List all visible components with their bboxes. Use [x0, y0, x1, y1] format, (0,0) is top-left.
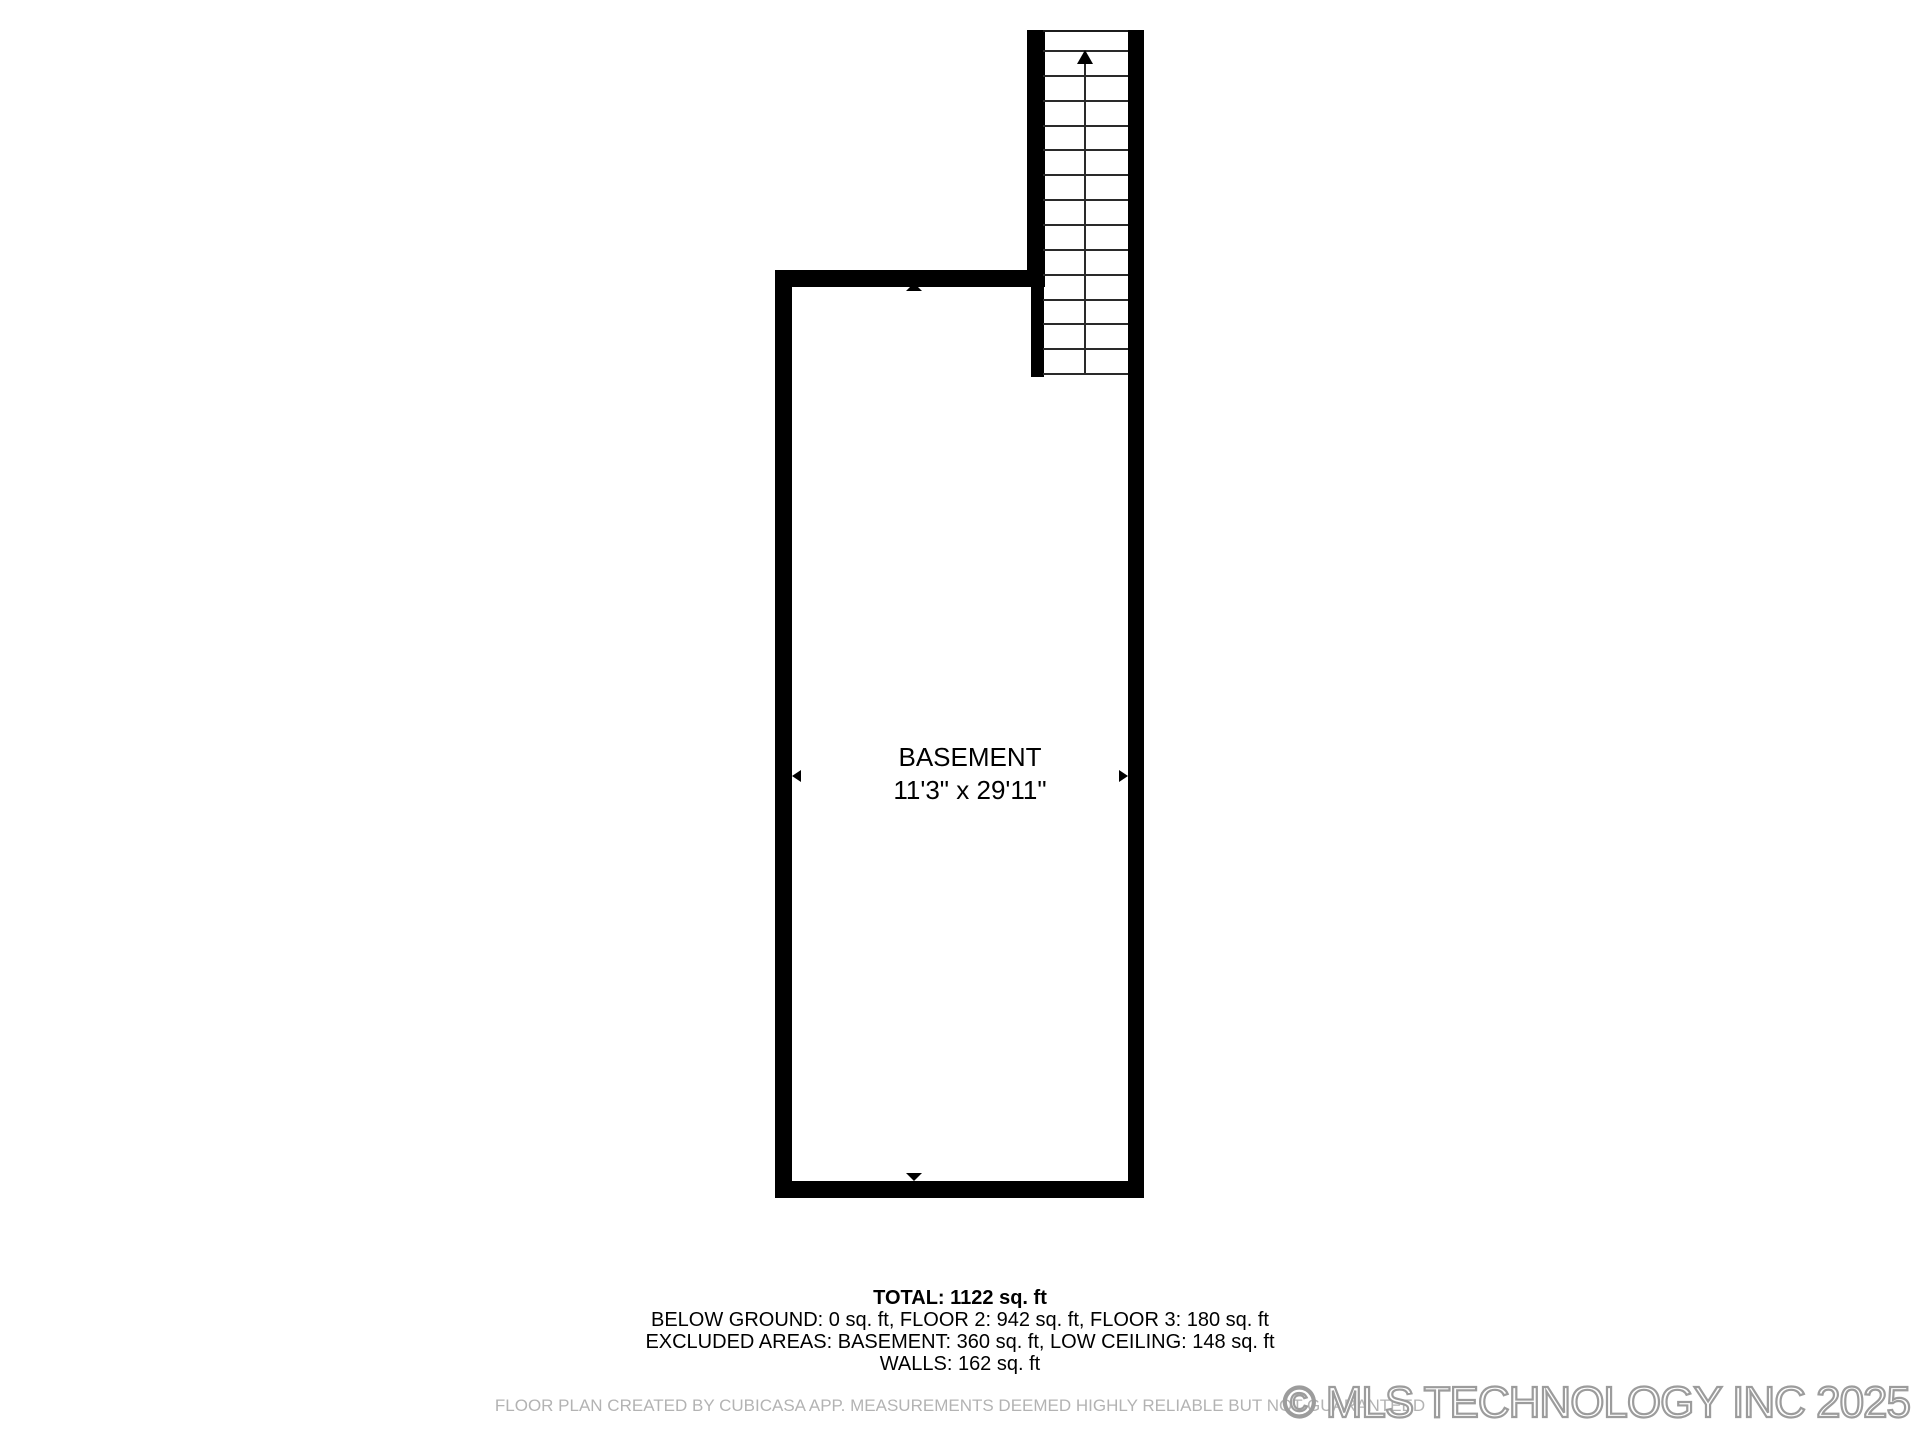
stairs-up-arrow-icon [1077, 50, 1093, 64]
summary-total: TOTAL: 1122 sq. ft [0, 1287, 1920, 1309]
room-name: BASEMENT [770, 741, 1170, 774]
summary-floors: BELOW GROUND: 0 sq. ft, FLOOR 2: 942 sq.… [0, 1309, 1920, 1331]
staircase [1043, 30, 1128, 377]
room-wall-right [1128, 30, 1144, 1198]
dimension-arrow-up-icon [906, 283, 922, 291]
stair-center-line [1084, 50, 1086, 374]
area-summary: TOTAL: 1122 sq. ft BELOW GROUND: 0 sq. f… [0, 1287, 1920, 1375]
room-dimensions: 11'3" x 29'11" [770, 774, 1170, 807]
dimension-arrow-down-icon [906, 1173, 922, 1181]
summary-walls: WALLS: 162 sq. ft [0, 1353, 1920, 1375]
room-wall-left [775, 270, 792, 1198]
room-wall-bottom [775, 1181, 1144, 1198]
room-label: BASEMENT 11'3" x 29'11" [770, 741, 1170, 807]
summary-excluded-areas: EXCLUDED AREAS: BASEMENT: 360 sq. ft, LO… [0, 1331, 1920, 1353]
room-wall-top [775, 270, 1028, 287]
watermark-text: © MLS TECHNOLOGY INC 2025 [1283, 1378, 1910, 1428]
